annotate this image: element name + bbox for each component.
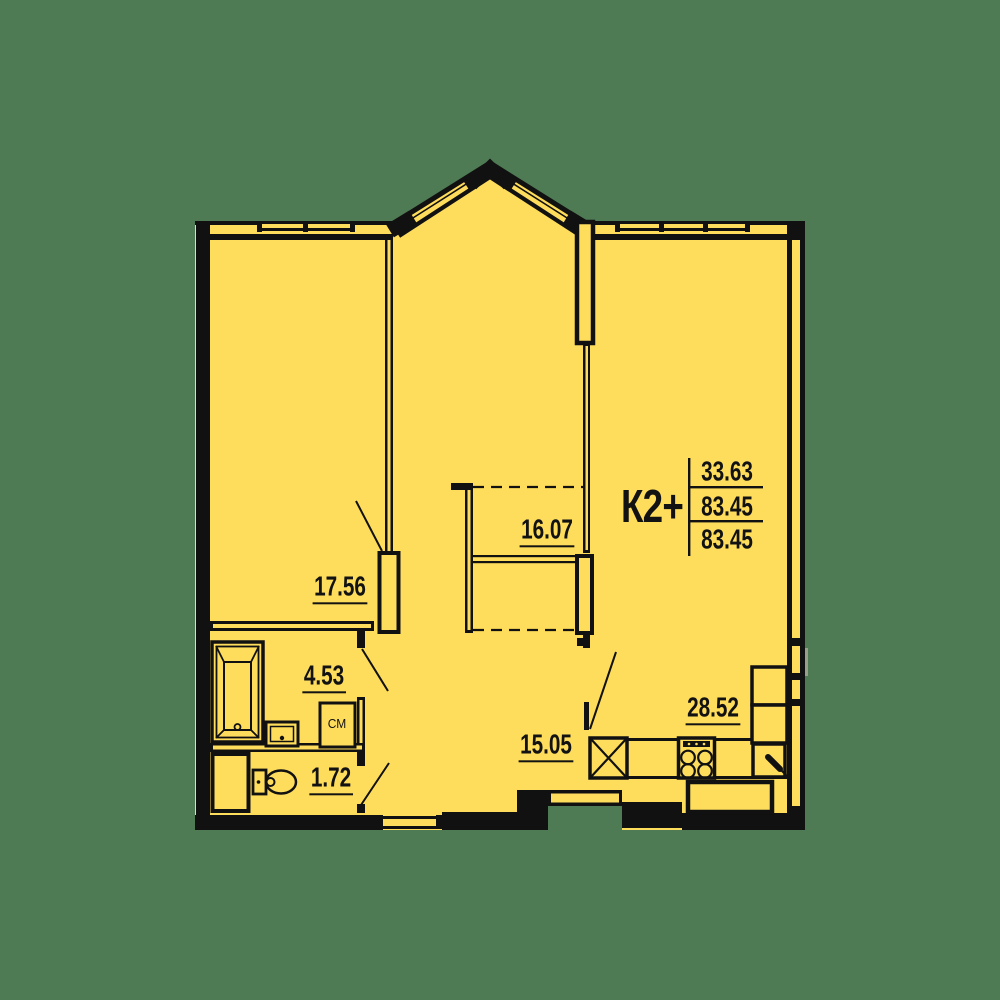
bathroom-sink: [266, 722, 298, 746]
window-top-left: [257, 221, 355, 232]
kitchen-base-cabinet: [590, 738, 627, 778]
washing-machine: [320, 703, 355, 747]
wardrobe-shelf: [473, 555, 578, 557]
kitchen-ledge: [688, 782, 772, 812]
stove: [679, 738, 715, 778]
kitchen-sink: [753, 744, 789, 778]
kitchen-cabinets: [752, 667, 787, 743]
toilet: [253, 770, 296, 794]
duct-shaft: [213, 754, 249, 811]
window-top-right: [615, 221, 750, 232]
floor-plan-canvas: К2+ 33.63 83.45 83.45 17.56 16.07 4.53 1…: [0, 0, 1000, 1000]
floor-plan-drawing: [0, 0, 1000, 1000]
right-window-glass: [805, 648, 808, 676]
bathtub: [212, 642, 263, 742]
door-wardrobe: [577, 556, 592, 633]
